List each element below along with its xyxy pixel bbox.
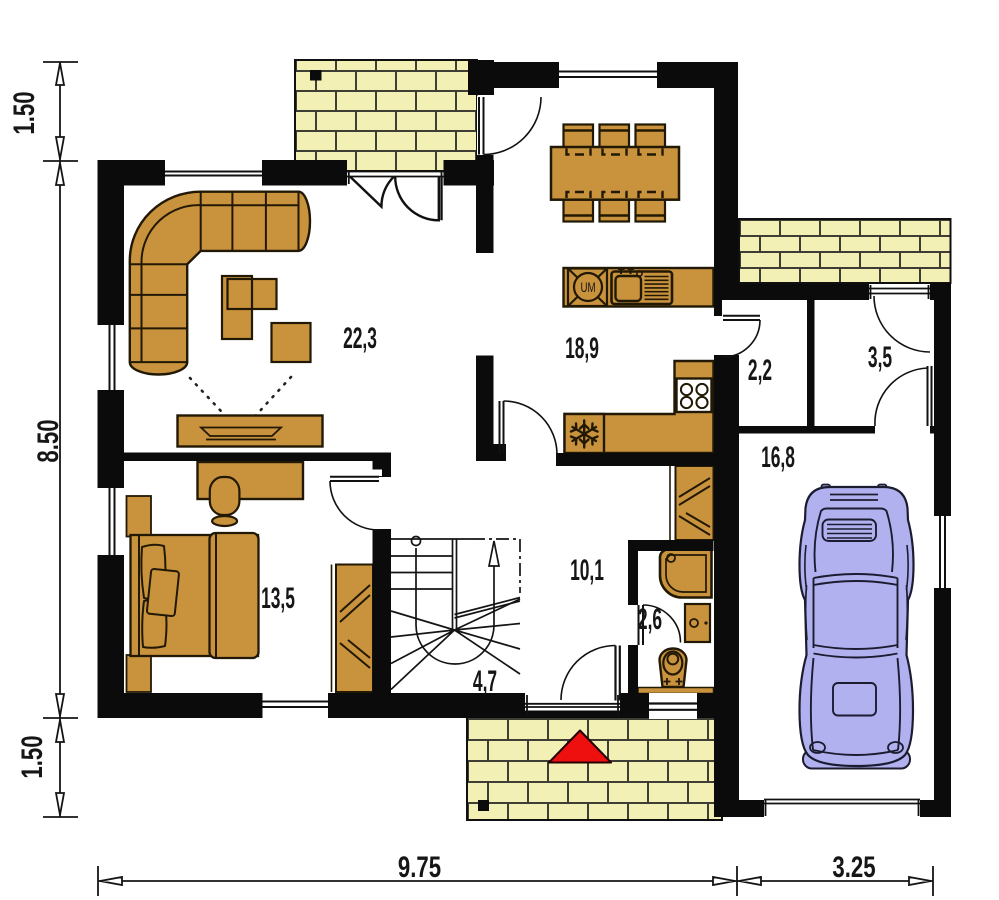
- svg-text:13,5: 13,5: [261, 582, 295, 615]
- svg-text:2,6: 2,6: [638, 603, 662, 636]
- svg-text:18,9: 18,9: [565, 332, 599, 365]
- svg-text:4,7: 4,7: [473, 665, 497, 698]
- svg-text:16,8: 16,8: [761, 441, 795, 474]
- svg-text:UM: UM: [580, 281, 595, 296]
- svg-text:8.50: 8.50: [31, 419, 65, 462]
- svg-text:3,5: 3,5: [868, 341, 892, 374]
- svg-text:2,2: 2,2: [748, 354, 772, 387]
- svg-text:3.25: 3.25: [832, 850, 875, 884]
- svg-text:1.50: 1.50: [15, 735, 49, 778]
- svg-text:10,1: 10,1: [570, 554, 604, 587]
- svg-text:1.50: 1.50: [7, 91, 41, 134]
- svg-text:22,3: 22,3: [343, 322, 377, 355]
- svg-text:9.75: 9.75: [398, 850, 441, 884]
